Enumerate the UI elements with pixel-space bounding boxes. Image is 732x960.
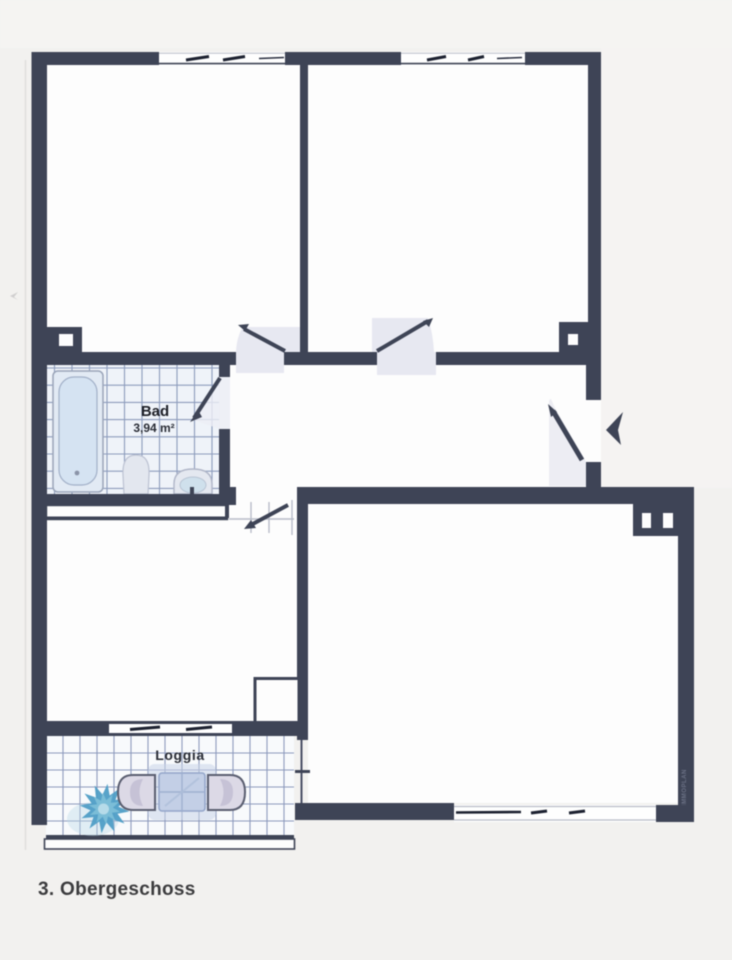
svg-text:Bad: Bad <box>141 403 169 420</box>
svg-text:IMMOPLAN: IMMOPLAN <box>681 769 688 806</box>
svg-text:3. Obergeschoss: 3. Obergeschoss <box>38 879 196 900</box>
svg-text:Loggia: Loggia <box>155 747 204 763</box>
svg-text:3,94 m²: 3,94 m² <box>133 421 174 435</box>
